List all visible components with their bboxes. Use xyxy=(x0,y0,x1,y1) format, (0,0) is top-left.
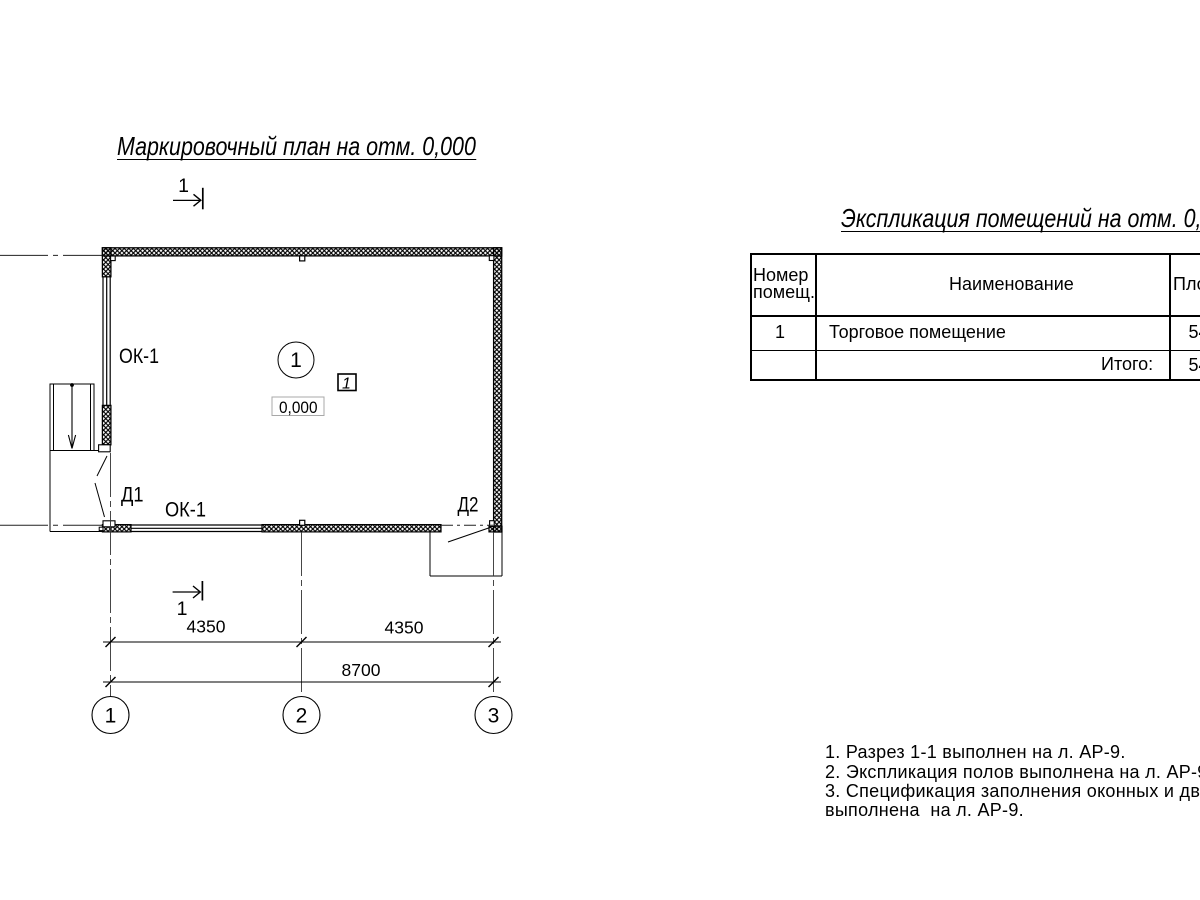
svg-text:1: 1 xyxy=(342,376,351,393)
svg-text:3: 3 xyxy=(488,705,500,728)
svg-text:1: 1 xyxy=(290,349,302,372)
svg-text:2: 2 xyxy=(296,705,308,728)
svg-text:ОК-1: ОК-1 xyxy=(119,344,159,368)
svg-text:ОК-1: ОК-1 xyxy=(165,497,206,521)
svg-text:8700: 8700 xyxy=(342,660,381,680)
svg-text:1: 1 xyxy=(105,705,117,728)
svg-text:1: 1 xyxy=(178,175,189,197)
svg-text:0,000: 0,000 xyxy=(279,399,318,417)
svg-text:1: 1 xyxy=(177,598,188,620)
svg-text:Д1: Д1 xyxy=(121,483,144,507)
svg-text:4350: 4350 xyxy=(385,618,424,638)
svg-text:4350: 4350 xyxy=(187,617,226,637)
svg-text:Д2: Д2 xyxy=(458,492,479,516)
